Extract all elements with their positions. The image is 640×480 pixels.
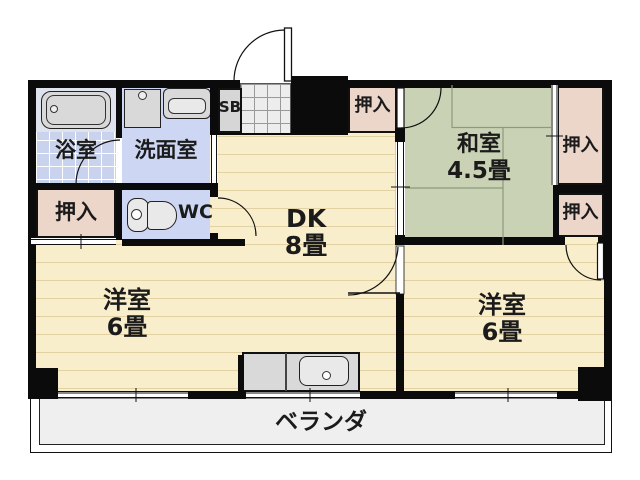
label-western-left: 洋室 [52,288,202,313]
label-japanese-room: 和室 [404,133,554,156]
entrance-door-leaf [285,28,292,81]
label-wc: WC [178,203,212,223]
label-western-right-size: 6畳 [427,320,577,345]
label-closet-left: 押入 [36,201,116,223]
label-japanese-room-size: 4.5畳 [404,159,554,183]
label-closet-right-lower: 押入 [557,204,604,223]
label-bath: 浴室 [36,139,116,161]
western-right-door-leaf [598,243,604,279]
window-western-right [455,388,557,402]
wc-door-arc [218,198,256,236]
window-western-left [58,388,188,402]
western-right-door-arc [566,245,601,280]
window-kitchen [246,388,360,402]
label-shoe-box: SB [217,100,243,116]
label-western-right: 洋室 [427,293,577,318]
entrance-door-arc [234,30,285,81]
floorplan: 浴室 洗面室 WC SB 押入 押入 押入 押入 和室 4.5畳 DK 8畳 洋… [0,0,640,480]
label-washroom: 洗面室 [120,139,212,161]
label-dk: DK [256,206,356,232]
label-dk-size: 8畳 [256,233,356,259]
label-closet-right-upper: 押入 [557,137,604,156]
label-western-left-size: 6畳 [52,315,202,340]
label-veranda: ベランダ [30,410,612,434]
label-closet-top: 押入 [348,97,397,116]
washitsu-door-arc [401,88,441,128]
washitsu-door-leaf [397,88,404,128]
fusuma-closet-left [31,234,116,249]
